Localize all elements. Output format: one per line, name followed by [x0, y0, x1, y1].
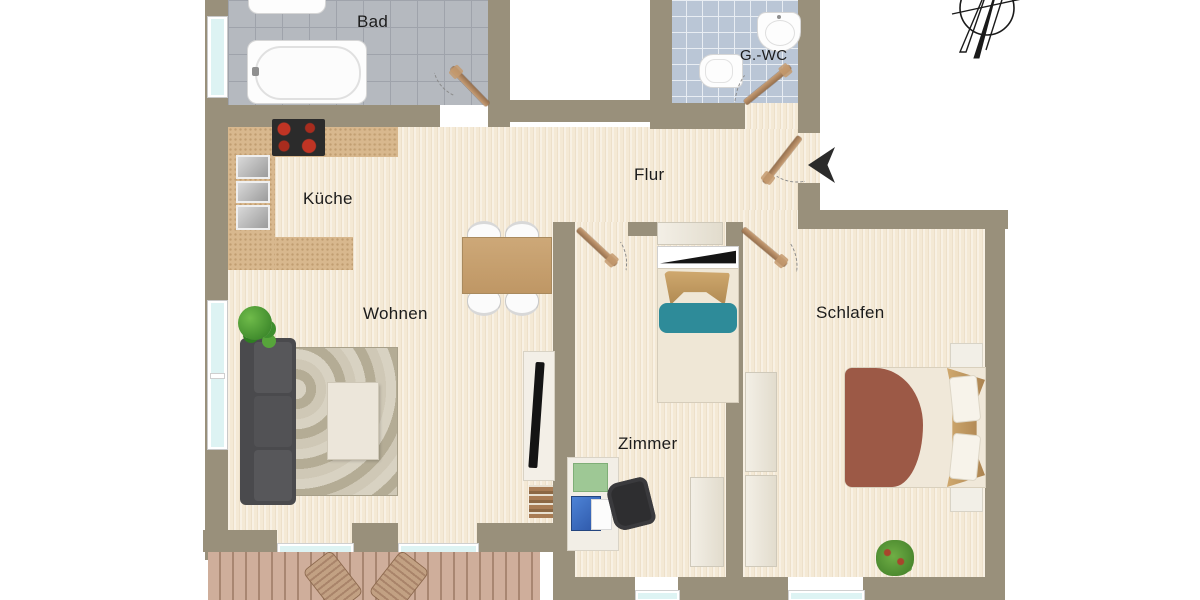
kitchen-sink-2 [236, 181, 270, 203]
compass-rose-icon [930, 0, 1040, 78]
room-label-wohnen: Wohnen [363, 304, 428, 324]
desk-pad [573, 463, 608, 492]
tv-sideboard [524, 352, 554, 480]
nightstand-top [950, 343, 983, 368]
window-glass [791, 593, 862, 599]
coffee-table [328, 383, 378, 459]
bed-pillow-top [949, 375, 982, 424]
zimmer-bed-pillow [659, 303, 737, 333]
floor-gwc-doorway [745, 103, 798, 129]
stove-cooktop [272, 119, 325, 156]
zimmer-tv [660, 249, 736, 267]
window-schlafen-south [788, 590, 865, 600]
wall-zimmer-north-stub [628, 222, 657, 236]
sofa [240, 338, 296, 505]
room-label-bad: Bad [357, 12, 388, 32]
sofa-cushion [254, 450, 292, 501]
wall-east-below-entry [798, 183, 820, 213]
window-zimmer-south [635, 590, 680, 600]
room-label-gwc: G.-WC [740, 47, 787, 64]
room-label-kueche: Küche [303, 189, 353, 209]
zimmer-tv-board [658, 247, 738, 269]
window-bad [207, 16, 228, 98]
zimmer-niche-wardrobe [657, 222, 723, 245]
gwc-sink-bowl [765, 20, 795, 46]
double-bed [845, 368, 985, 487]
gwc-sink-faucet [777, 15, 781, 19]
wall-schlafen-south-1 [743, 577, 788, 600]
plant-wohnen [238, 306, 272, 340]
schlafen-wardrobe-2 [745, 475, 777, 567]
bathtub-faucet [252, 67, 259, 76]
zimmer-bed-wood-frame [664, 271, 730, 305]
wall-wohnen-south-3 [477, 523, 553, 552]
window-glass [638, 593, 677, 599]
kitchen-appliance [352, 127, 398, 157]
kitchen-sink-1 [236, 155, 270, 179]
floor-schlafen-doorway [743, 210, 798, 230]
tv [528, 362, 544, 468]
kitchen-counter-bottom [275, 237, 353, 270]
room-label-flur: Flur [634, 165, 664, 185]
plant-schlafen [876, 540, 914, 576]
washbasin [248, 0, 326, 14]
wall-schlafen-east [985, 210, 1005, 600]
wall-zimmer-south-1 [553, 577, 635, 600]
window-wohnen [207, 300, 228, 450]
schlafen-wardrobe-1 [745, 372, 777, 472]
dining-table [463, 238, 551, 293]
bed-blanket [845, 368, 923, 487]
wall-schlafen-north [798, 210, 1008, 229]
zimmer-wardrobe [690, 477, 724, 567]
wall-flur-north [505, 100, 672, 122]
gwc-toilet-seat [705, 59, 733, 83]
wall-gwc-south [650, 103, 745, 129]
bathtub [247, 40, 367, 104]
sofa-cushion [254, 396, 292, 447]
wall-wohnen-south-2 [352, 523, 398, 552]
bathtub-basin [255, 46, 361, 100]
wall-zimmer-south-2 [678, 577, 743, 600]
wall-schlafen-south-2 [863, 577, 1005, 600]
bed-pillow-bottom [949, 433, 982, 482]
gwc-sink [757, 12, 801, 52]
room-label-schlafen: Schlafen [816, 303, 885, 323]
gwc-toilet [699, 54, 743, 88]
kitchen-sink-3 [236, 205, 270, 230]
window-mullion [210, 373, 225, 379]
window-glass [211, 19, 224, 95]
wall-wohnen-south-1 [203, 530, 277, 552]
wall-east-upper [798, 0, 820, 133]
sofa-cushion [254, 342, 292, 393]
floorplan: Bad G.-WC Flur Küche Wohnen Zimmer Schla… [0, 0, 1200, 600]
zimmer-single-bed [658, 269, 738, 402]
nightstand-bottom [950, 487, 983, 512]
room-label-zimmer: Zimmer [618, 434, 677, 454]
book-stack [529, 485, 553, 518]
